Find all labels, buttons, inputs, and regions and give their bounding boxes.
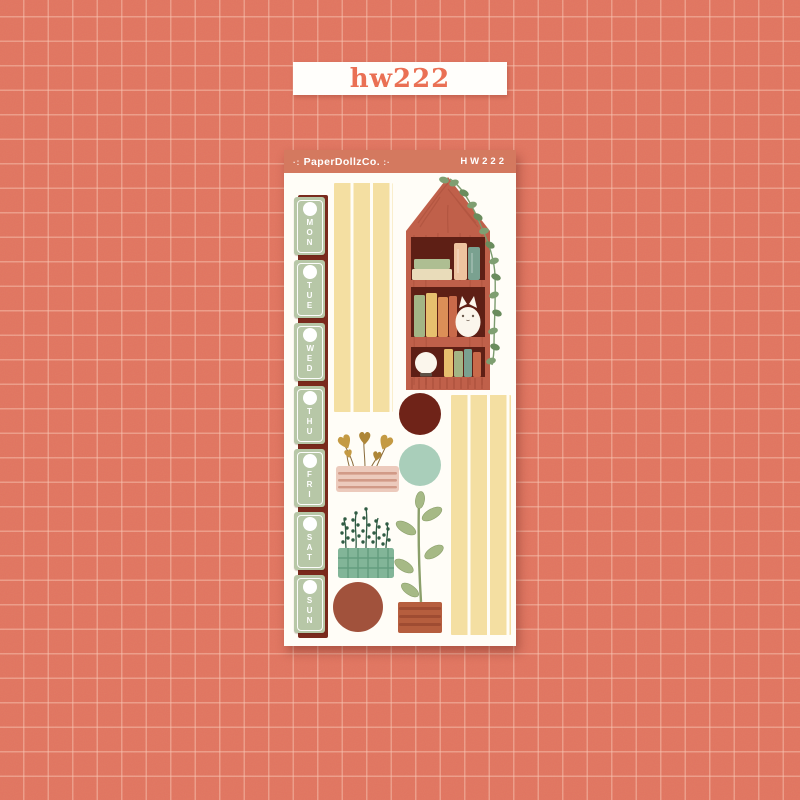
circle-checkbox-icon: [303, 265, 317, 279]
day-label: SAT: [307, 533, 313, 563]
middle-shelf-books: [414, 293, 457, 337]
logo-sparkle-right-icon: :·: [383, 158, 390, 167]
day-sticker-tue: TUE: [294, 260, 325, 318]
circle-checkbox-icon: [303, 580, 317, 594]
day-sticker-sun: SUN: [294, 575, 325, 633]
day-label: TUE: [307, 281, 313, 311]
pot-stripes-icon: [399, 607, 441, 626]
sheet-header: ·: PaperDollzCo. :· HW222: [284, 150, 516, 173]
circle-checkbox-icon: [303, 328, 317, 342]
maroon-dot-sticker: [399, 393, 441, 435]
day-sticker-sat: SAT: [294, 512, 325, 570]
day-sticker-wed: WED: [294, 323, 325, 381]
sprig-leaves-icon: [340, 507, 390, 545]
bottom-shelf: [415, 349, 481, 377]
globe-lamp-icon: [415, 352, 437, 374]
circle-checkbox-icon: [303, 454, 317, 468]
sku-label: HW222: [460, 156, 507, 167]
sticker-sheet: ·: PaperDollzCo. :· HW222 MON TUE WED TH…: [284, 150, 516, 646]
day-label: THU: [307, 407, 313, 437]
product-image: hw222 ·: PaperDollzCo. :· HW222 MON TUE …: [0, 0, 800, 800]
day-label: WED: [307, 344, 313, 374]
tall-plant-illustration: [394, 490, 446, 635]
washi-strip-sticker: [451, 395, 511, 635]
sprig-plant-illustration: [332, 502, 402, 580]
mint-dot-sticker: [399, 444, 441, 486]
product-code-banner: hw222: [293, 62, 507, 95]
hanging-plant-illustration: [334, 430, 401, 495]
day-sticker-fri: FRI: [294, 449, 325, 507]
washi-strip-sticker: [334, 183, 393, 412]
circle-checkbox-icon: [303, 202, 317, 216]
day-label: SUN: [307, 596, 313, 626]
brown-dot-sticker: [333, 582, 383, 632]
gold-heart-leaves-icon: [337, 432, 395, 461]
day-sticker-mon: MON: [294, 197, 325, 255]
sprig-stems-icon: [344, 508, 388, 548]
brand-name: PaperDollzCo.: [304, 156, 380, 168]
circle-checkbox-icon: [303, 391, 317, 405]
logo-sparkle-left-icon: ·:: [293, 158, 300, 167]
bookshelf-house-illustration: [404, 175, 504, 390]
day-label: MON: [307, 218, 313, 248]
circle-checkbox-icon: [303, 517, 317, 531]
brand-logo: ·: PaperDollzCo. :·: [293, 156, 391, 168]
product-code-text: hw222: [350, 64, 451, 94]
day-label: FRI: [307, 470, 313, 500]
day-sticker-thu: THU: [294, 386, 325, 444]
